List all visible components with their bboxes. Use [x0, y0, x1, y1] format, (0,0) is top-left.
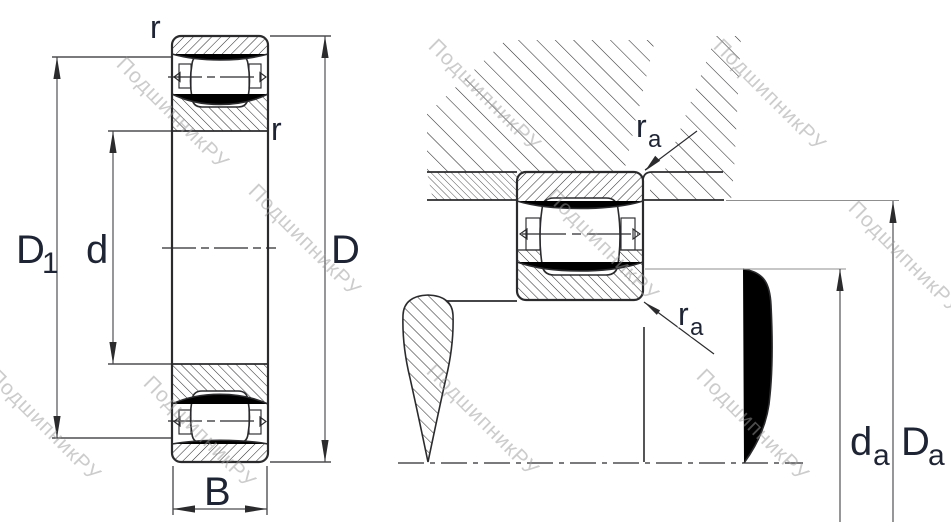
watermark-text: ПодшипникРУ [844, 197, 951, 319]
arrow-down-icon [321, 440, 328, 462]
bearing-technical-drawing: D 1 d D B r r r a r a d a D a ПодшипникР… [0, 0, 951, 532]
label-Da-main: D [901, 420, 930, 464]
arrow-up-icon [321, 36, 328, 58]
label-r-top: r [150, 9, 161, 45]
label-d: d [86, 228, 108, 272]
label-ra-top-sub: a [648, 126, 662, 153]
drawing-canvas: D 1 d D B r r r a r a d a D a ПодшипникР… [0, 0, 951, 532]
arrow-up-icon [109, 131, 116, 153]
arrow-down-icon [109, 342, 116, 364]
inner-ring-shoulder-left [518, 250, 542, 263]
housing-section-right-lower [650, 172, 734, 200]
label-r-side: r [271, 111, 282, 147]
housing-shoulder-ring [427, 172, 517, 200]
outer-raceway-arc-top [172, 54, 268, 60]
arrow-left-icon [173, 505, 195, 512]
label-Da-sub: a [928, 439, 945, 472]
label-B: B [204, 470, 231, 514]
label-D1-sub: 1 [42, 247, 59, 280]
watermark-text: ПодшипникРУ [422, 360, 544, 482]
watermark-text: ПодшипникРУ [0, 365, 105, 487]
label-ra-bottom-sub: a [690, 314, 704, 341]
label-ra-bottom-main: r [678, 296, 689, 332]
label-ra-top-main: r [636, 108, 647, 144]
arrow-up-icon [53, 57, 60, 79]
label-D1-main: D [16, 228, 45, 272]
arrow-up-icon [836, 269, 843, 291]
arrow-up-icon [889, 201, 896, 223]
label-da-main: d [850, 420, 872, 464]
label-da-sub: a [873, 439, 890, 472]
arrow-right-icon [245, 505, 267, 512]
arrow-corner-icon [645, 156, 660, 171]
